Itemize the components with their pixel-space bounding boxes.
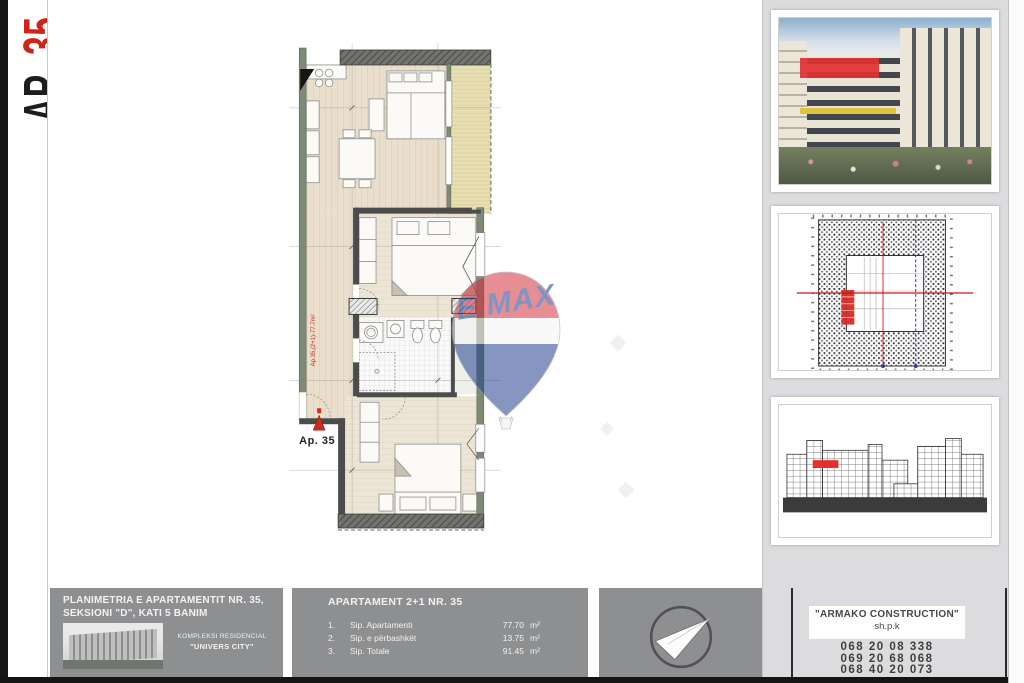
bottom-exterior-wall bbox=[338, 514, 484, 528]
nightstand bbox=[463, 494, 477, 511]
wardrobe2 bbox=[360, 402, 379, 462]
balcony-floor bbox=[450, 64, 491, 214]
sparkle-diamond-icon bbox=[610, 335, 627, 352]
compass-block bbox=[599, 588, 762, 677]
window bbox=[446, 137, 452, 185]
sidebar: "ARMAKO CONSTRUCTION" sh.p.k 068 20 08 3… bbox=[762, 0, 1009, 683]
divider-line bbox=[1005, 588, 1007, 677]
elevation-panel bbox=[771, 397, 999, 545]
area-row: 1. Sip. Apartamenti 77.70 m² bbox=[292, 619, 588, 632]
top-exterior-wall bbox=[340, 50, 491, 65]
highlighted-apartment-band bbox=[800, 58, 878, 78]
window bbox=[476, 424, 485, 452]
loggia-floor bbox=[455, 317, 477, 394]
sofa-chaise bbox=[387, 93, 411, 139]
entry-marker-dot bbox=[317, 408, 321, 413]
divider-line bbox=[791, 588, 793, 677]
elevation-image bbox=[778, 404, 992, 538]
dining-table bbox=[339, 139, 375, 179]
window bbox=[476, 458, 485, 492]
column bbox=[349, 298, 377, 314]
coffee-table bbox=[369, 99, 384, 131]
drawing-sheet: Ap. 35 Ap.35,(2+1)-77.7m² E/MAX bbox=[48, 0, 762, 587]
entry-marker-label: Ap. 35 bbox=[299, 435, 335, 447]
highlighted-apartment-plan bbox=[841, 290, 854, 325]
kitchen-counter bbox=[306, 101, 319, 129]
stove-burner bbox=[325, 79, 333, 87]
left-exterior-wall bbox=[299, 48, 306, 420]
building-photo-thumbnail bbox=[63, 623, 163, 669]
titleblock-left: PLANIMETRIA E APARTAMENTIT NR. 35, SEKSI… bbox=[50, 588, 283, 677]
kitchen-counter bbox=[306, 131, 319, 155]
door-opening bbox=[353, 338, 359, 362]
stove-burner bbox=[325, 69, 333, 77]
highlighted-apartment-elevation bbox=[813, 460, 839, 468]
entry-opening bbox=[299, 392, 306, 418]
site-plan-panel bbox=[771, 206, 999, 378]
washing-machine bbox=[387, 320, 404, 337]
site-plan-image bbox=[778, 213, 992, 371]
phone-numbers: 068 20 08 338 069 20 68 068 068 40 20 07… bbox=[809, 642, 965, 677]
building-render-image bbox=[778, 17, 992, 185]
titleblock-areas: APARTAMENT 2+1 NR. 35 1. Sip. Apartament… bbox=[292, 588, 588, 677]
bottom-black-strip bbox=[0, 677, 1008, 683]
company-name: "ARMAKO CONSTRUCTION" bbox=[809, 609, 965, 620]
plan-title: PLANIMETRIA E APARTAMENTIT NR. 35, SEKSI… bbox=[63, 595, 264, 620]
sparkle-diamond-icon bbox=[600, 422, 614, 436]
apartment-title: APARTAMENT 2+1 NR. 35 bbox=[328, 596, 463, 608]
phone-number: 068 40 20 073 bbox=[809, 665, 965, 677]
courtyard-garden bbox=[779, 147, 991, 184]
company-legal-form: sh.p.k bbox=[809, 621, 965, 632]
wardrobe1 bbox=[359, 218, 376, 284]
yellow-floor-band bbox=[800, 108, 895, 115]
north-arrow-icon bbox=[645, 601, 717, 673]
area-table: 1. Sip. Apartamenti 77.70 m² 2. Sip. e p… bbox=[292, 619, 588, 658]
area-row: 3. Sip. Totale 91.45 m² bbox=[292, 645, 588, 658]
kitchen-counter bbox=[306, 157, 319, 183]
area-row: 2. Sip. e përbashkët 13.75 m² bbox=[292, 632, 588, 645]
sparkle-diamond-icon bbox=[618, 482, 635, 499]
wall-area-note: Ap.35,(2+1)-77.7m² bbox=[311, 314, 317, 366]
floorplan-sheet-page: { "side_label": {"prefix": "AP_", "numbe… bbox=[0, 0, 1024, 683]
left-black-strip bbox=[0, 0, 8, 683]
toilet bbox=[412, 328, 422, 343]
residential-complex-label: KOMPLEKSI RESIDENCIAL "UNIVERS CITY" bbox=[168, 633, 276, 651]
apartment-floor-plan: Ap. 35 Ap.35,(2+1)-77.7m² bbox=[289, 41, 501, 532]
building-render-panel bbox=[771, 10, 999, 192]
phone-number: 068 20 08 338 bbox=[809, 642, 965, 654]
window bbox=[446, 81, 452, 127]
nightstand bbox=[379, 494, 393, 511]
construction-company-box: "ARMAKO CONSTRUCTION" sh.p.k bbox=[809, 606, 965, 639]
stove-burner bbox=[315, 69, 323, 77]
column bbox=[452, 298, 476, 313]
stove-burner bbox=[315, 79, 323, 87]
balloon-basket bbox=[499, 418, 513, 429]
elevation-base bbox=[783, 498, 987, 513]
bidet bbox=[430, 328, 440, 343]
right-white-strip bbox=[1008, 0, 1024, 683]
